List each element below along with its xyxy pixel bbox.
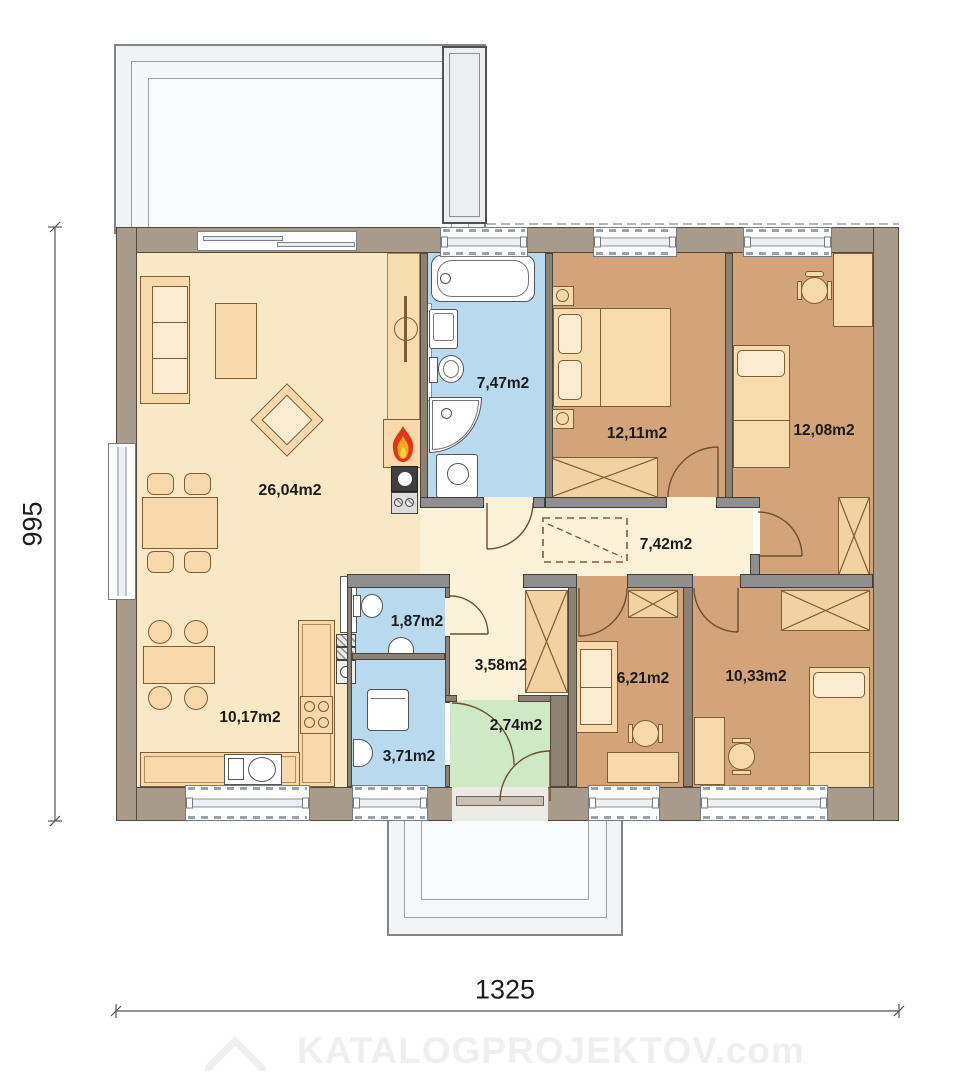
desk — [607, 752, 679, 783]
window-office — [588, 785, 660, 821]
wall-kitchen-wc — [347, 574, 352, 787]
desk — [694, 717, 725, 785]
kitchen-sink — [248, 757, 276, 782]
toilet-tank — [429, 357, 438, 383]
blanket-line — [809, 752, 870, 753]
wardrobe — [781, 590, 870, 631]
chimney-vent-box — [391, 492, 418, 514]
chair-armrest — [628, 724, 633, 743]
room-bedroom1-area-label: 12,11m2 — [607, 425, 667, 443]
room-kitchen-area-label: 10,17m2 — [219, 709, 280, 727]
desk-chair — [801, 277, 828, 304]
room-corridor-floor — [420, 505, 753, 578]
dimension-line-vertical — [48, 222, 62, 826]
wall-right — [873, 227, 899, 821]
wall-corridor-bottom — [627, 574, 693, 588]
burner — [304, 701, 315, 712]
desk-chair — [632, 720, 659, 747]
wall-corridor-bottom — [740, 574, 873, 588]
wardrobe — [628, 590, 678, 618]
wall-bedroom1-bottom — [716, 497, 760, 508]
door-threshold — [667, 497, 716, 508]
sofa-cushion-line — [580, 687, 612, 688]
chair-armrest — [732, 770, 751, 775]
toilet-tank — [353, 595, 361, 617]
toilet-bowl-inner — [443, 360, 459, 378]
pillow — [558, 314, 582, 354]
room-corridor-area-label: 7,42m2 — [640, 536, 693, 554]
dining-table — [142, 497, 218, 549]
wall-bath-bedroom1 — [545, 253, 553, 505]
wall-utility-vestibule — [445, 765, 450, 787]
flue-pipe-box — [336, 660, 356, 684]
kitchen-stool — [148, 620, 172, 644]
room-bedroom2-area-label: 12,08m2 — [793, 422, 854, 440]
sink-drainer — [228, 758, 244, 780]
dimension-line-horizontal — [111, 1004, 904, 1018]
room-hallway-floor — [445, 574, 525, 702]
wardrobe — [838, 497, 870, 575]
chair-armrest — [658, 724, 663, 743]
washbasin-bowl — [433, 313, 454, 341]
kitchen-stool — [184, 620, 208, 644]
cooktop — [300, 696, 333, 734]
door-threshold — [484, 497, 533, 508]
chair-back — [805, 271, 824, 277]
dining-chair — [184, 473, 211, 495]
sliding-pane — [203, 236, 283, 241]
wall-radiator-valve — [394, 317, 418, 341]
sofa-cushion-line — [152, 322, 188, 323]
chair-armrest — [827, 281, 832, 300]
dimension-width-label: 1325 — [475, 975, 535, 1006]
window-utility — [352, 785, 428, 821]
pillow — [813, 672, 865, 698]
terrace-column-inner — [449, 53, 480, 217]
wall-bath-bottom — [420, 497, 484, 508]
room-office-area-label: 6,21m2 — [617, 670, 670, 688]
vent-grille — [394, 498, 403, 507]
sofa-cushion-line — [152, 358, 188, 359]
window-kitchen — [185, 785, 310, 821]
room-vestibule-floor — [450, 700, 550, 787]
burner — [318, 717, 329, 728]
wall-hall-office — [568, 574, 577, 787]
washing-machine-panel — [371, 693, 405, 699]
kitchen-table — [143, 646, 215, 684]
wall-living-bath — [420, 253, 428, 505]
dimension-height-label: 995 — [18, 501, 49, 546]
burner — [304, 717, 315, 728]
sliding-pane — [277, 242, 355, 247]
wall-wc-utility — [352, 653, 445, 660]
toilet-bowl — [361, 594, 383, 618]
wardrobe — [550, 457, 658, 498]
wall-corridor-bottom — [523, 574, 577, 588]
desk — [833, 253, 873, 327]
blanket-line — [600, 308, 601, 407]
blanket-line — [733, 420, 790, 421]
dining-chair — [184, 551, 211, 573]
window-bathroom — [440, 227, 528, 257]
bedside-lamp — [556, 412, 569, 425]
wall-vestibule-office — [550, 695, 568, 787]
chimney-flue-opening — [398, 472, 412, 486]
terrace-inner — [148, 78, 452, 234]
wall-office-bedroom3 — [683, 574, 693, 787]
flue-shaft — [336, 634, 356, 647]
room-wc-area-label: 1,87m2 — [391, 613, 444, 631]
hall-wardrobe — [525, 590, 568, 693]
room-utility-area-label: 3,71m2 — [383, 748, 436, 766]
roof-icon — [205, 1031, 283, 1071]
burner — [318, 701, 329, 712]
room-bathroom-area-label: 7,47m2 — [477, 375, 530, 393]
water-heater-dial — [447, 463, 469, 485]
window-bedroom3 — [700, 785, 828, 821]
watermark: KATALOGPROJEKTOV.com — [205, 1030, 805, 1072]
wall-wc-hall — [445, 636, 450, 703]
bedside-lamp — [556, 289, 569, 302]
wall-bath-bottom — [533, 497, 545, 508]
kitchen-stool — [148, 686, 172, 710]
window-bedroom1 — [593, 227, 677, 257]
wall-wc-top — [347, 574, 450, 588]
pillow — [558, 360, 582, 400]
shower-drain — [441, 408, 452, 419]
room-hallway-area-label: 3,58m2 — [475, 657, 528, 675]
porch-inner — [421, 821, 589, 900]
chimney-box — [391, 466, 418, 492]
room-living-area-label: 26,04m2 — [258, 482, 321, 500]
wall-bedroom1-bottom — [545, 497, 667, 508]
flame-icon — [391, 426, 415, 462]
pillow — [737, 350, 785, 377]
bathtub-drain — [440, 273, 451, 284]
desk-chair — [728, 743, 755, 770]
dining-chair — [147, 473, 174, 495]
dining-chair — [147, 551, 174, 573]
fireplace — [383, 419, 422, 468]
chair-armrest — [732, 738, 751, 743]
room-bedroom3-area-label: 10,33m2 — [725, 668, 786, 686]
wall-hall-vestibule — [445, 695, 457, 702]
room-vestibule-area-label: 2,74m2 — [490, 717, 543, 735]
window-bedroom2 — [743, 227, 832, 257]
entrance-threshold — [456, 796, 544, 806]
vent-grille — [405, 498, 414, 507]
chair-armrest — [797, 281, 802, 300]
coffee-table — [215, 303, 257, 379]
window-living-left — [108, 443, 136, 600]
floor-plan: 26,04m2 10,17m2 7,47m2 12,11m2 12,08m2 7… — [0, 0, 964, 1080]
wall-bedroom1-bedroom2 — [725, 253, 733, 503]
sofa-seat — [152, 286, 188, 394]
terrace-sliding-door — [197, 231, 357, 251]
kitchen-stool — [184, 686, 208, 710]
watermark-text: KATALOGPROJEKTOV.com — [297, 1030, 805, 1072]
